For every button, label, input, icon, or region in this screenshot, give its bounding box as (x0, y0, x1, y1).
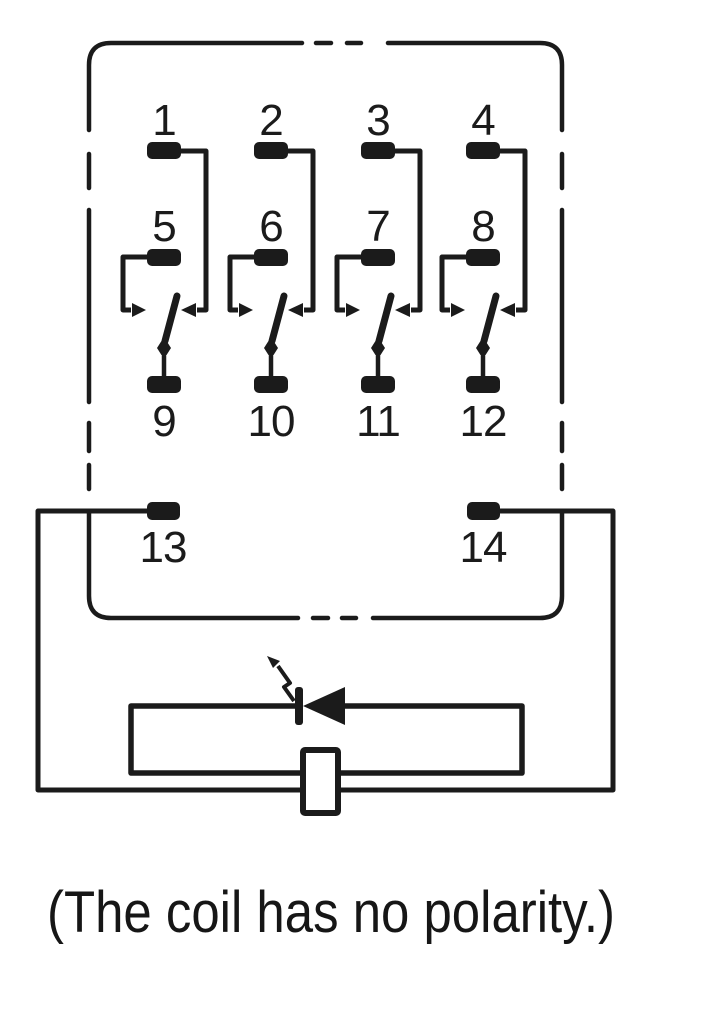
pin-5-terminal (147, 249, 181, 266)
pin-5-wire (123, 257, 149, 310)
pin-1-wire (179, 151, 206, 310)
pin-9-terminal (147, 376, 181, 393)
pin-4-wire (498, 151, 525, 310)
led-symbol (267, 656, 345, 725)
pin-14-terminal (467, 502, 500, 520)
pin-14-label: 14 (460, 523, 507, 572)
pole-1-lever (165, 296, 177, 341)
led-light-bolt (278, 666, 294, 701)
pin-6-wire (230, 257, 256, 310)
outline-bottom-left (89, 511, 298, 618)
pin-1-label: 1 (152, 96, 175, 145)
pin-1-arrow-icon (181, 303, 196, 317)
pin-11-label: 11 (356, 397, 400, 446)
pole-1-pivot-diamond (157, 337, 171, 359)
pin-6-arrow-icon (239, 303, 253, 317)
pin-6-terminal (254, 249, 288, 266)
pole-4-pivot-diamond (476, 337, 490, 359)
pin-2-arrow-icon (288, 303, 303, 317)
pin-2-terminal (254, 142, 288, 159)
pole-2-lever (272, 296, 284, 341)
pin-7-label: 7 (366, 202, 389, 251)
pin-7-wire (337, 257, 363, 310)
led-triangle (303, 687, 345, 725)
pole-4: 4 8 12 (442, 96, 525, 446)
coil-symbol (303, 750, 338, 813)
pin-2-wire (286, 151, 313, 310)
pin-5-arrow-icon (132, 303, 146, 317)
pin-3-wire (393, 151, 420, 310)
pin-9-label: 9 (152, 397, 175, 446)
caption: (The coil has no polarity.) (47, 880, 615, 945)
pin-1-terminal (147, 142, 181, 159)
pin-13-terminal (147, 502, 180, 520)
pin-4-terminal (466, 142, 500, 159)
pin-12-label: 12 (460, 397, 507, 446)
pin-7-terminal (361, 249, 395, 266)
pin-8-wire (442, 257, 468, 310)
coil-circuit: 13 14 (38, 502, 613, 813)
pole-4-lever (484, 296, 496, 341)
pin-10-terminal (254, 376, 288, 393)
pole-2-pivot-diamond (264, 337, 278, 359)
pin-13-label: 13 (140, 523, 187, 572)
pin-8-label: 8 (471, 202, 494, 251)
pole-3-pivot-diamond (371, 337, 385, 359)
pole-1: 1 5 9 (123, 96, 206, 446)
pin-8-terminal (466, 249, 500, 266)
pin-2-label: 2 (259, 96, 282, 145)
pin-6-label: 6 (259, 202, 282, 251)
pole-3: 3 7 11 (337, 96, 420, 446)
pin-10-label: 10 (248, 397, 295, 446)
pin-3-arrow-icon (395, 303, 410, 317)
pin-7-arrow-icon (346, 303, 360, 317)
relay-schematic-page: 1 5 9 2 6 10 (0, 0, 709, 1024)
pin-4-label: 4 (471, 96, 495, 145)
pole-3-lever (379, 296, 391, 341)
relay-schematic: 1 5 9 2 6 10 (0, 0, 709, 1024)
pin-8-arrow-icon (451, 303, 465, 317)
pin-12-terminal (466, 376, 500, 393)
pin-5-label: 5 (152, 202, 175, 251)
led-cathode-bar (295, 687, 303, 725)
pin-3-label: 3 (366, 96, 389, 145)
pin-3-terminal (361, 142, 395, 159)
pin-11-terminal (361, 376, 395, 393)
pole-2: 2 6 10 (230, 96, 313, 446)
pin-4-arrow-icon (500, 303, 515, 317)
